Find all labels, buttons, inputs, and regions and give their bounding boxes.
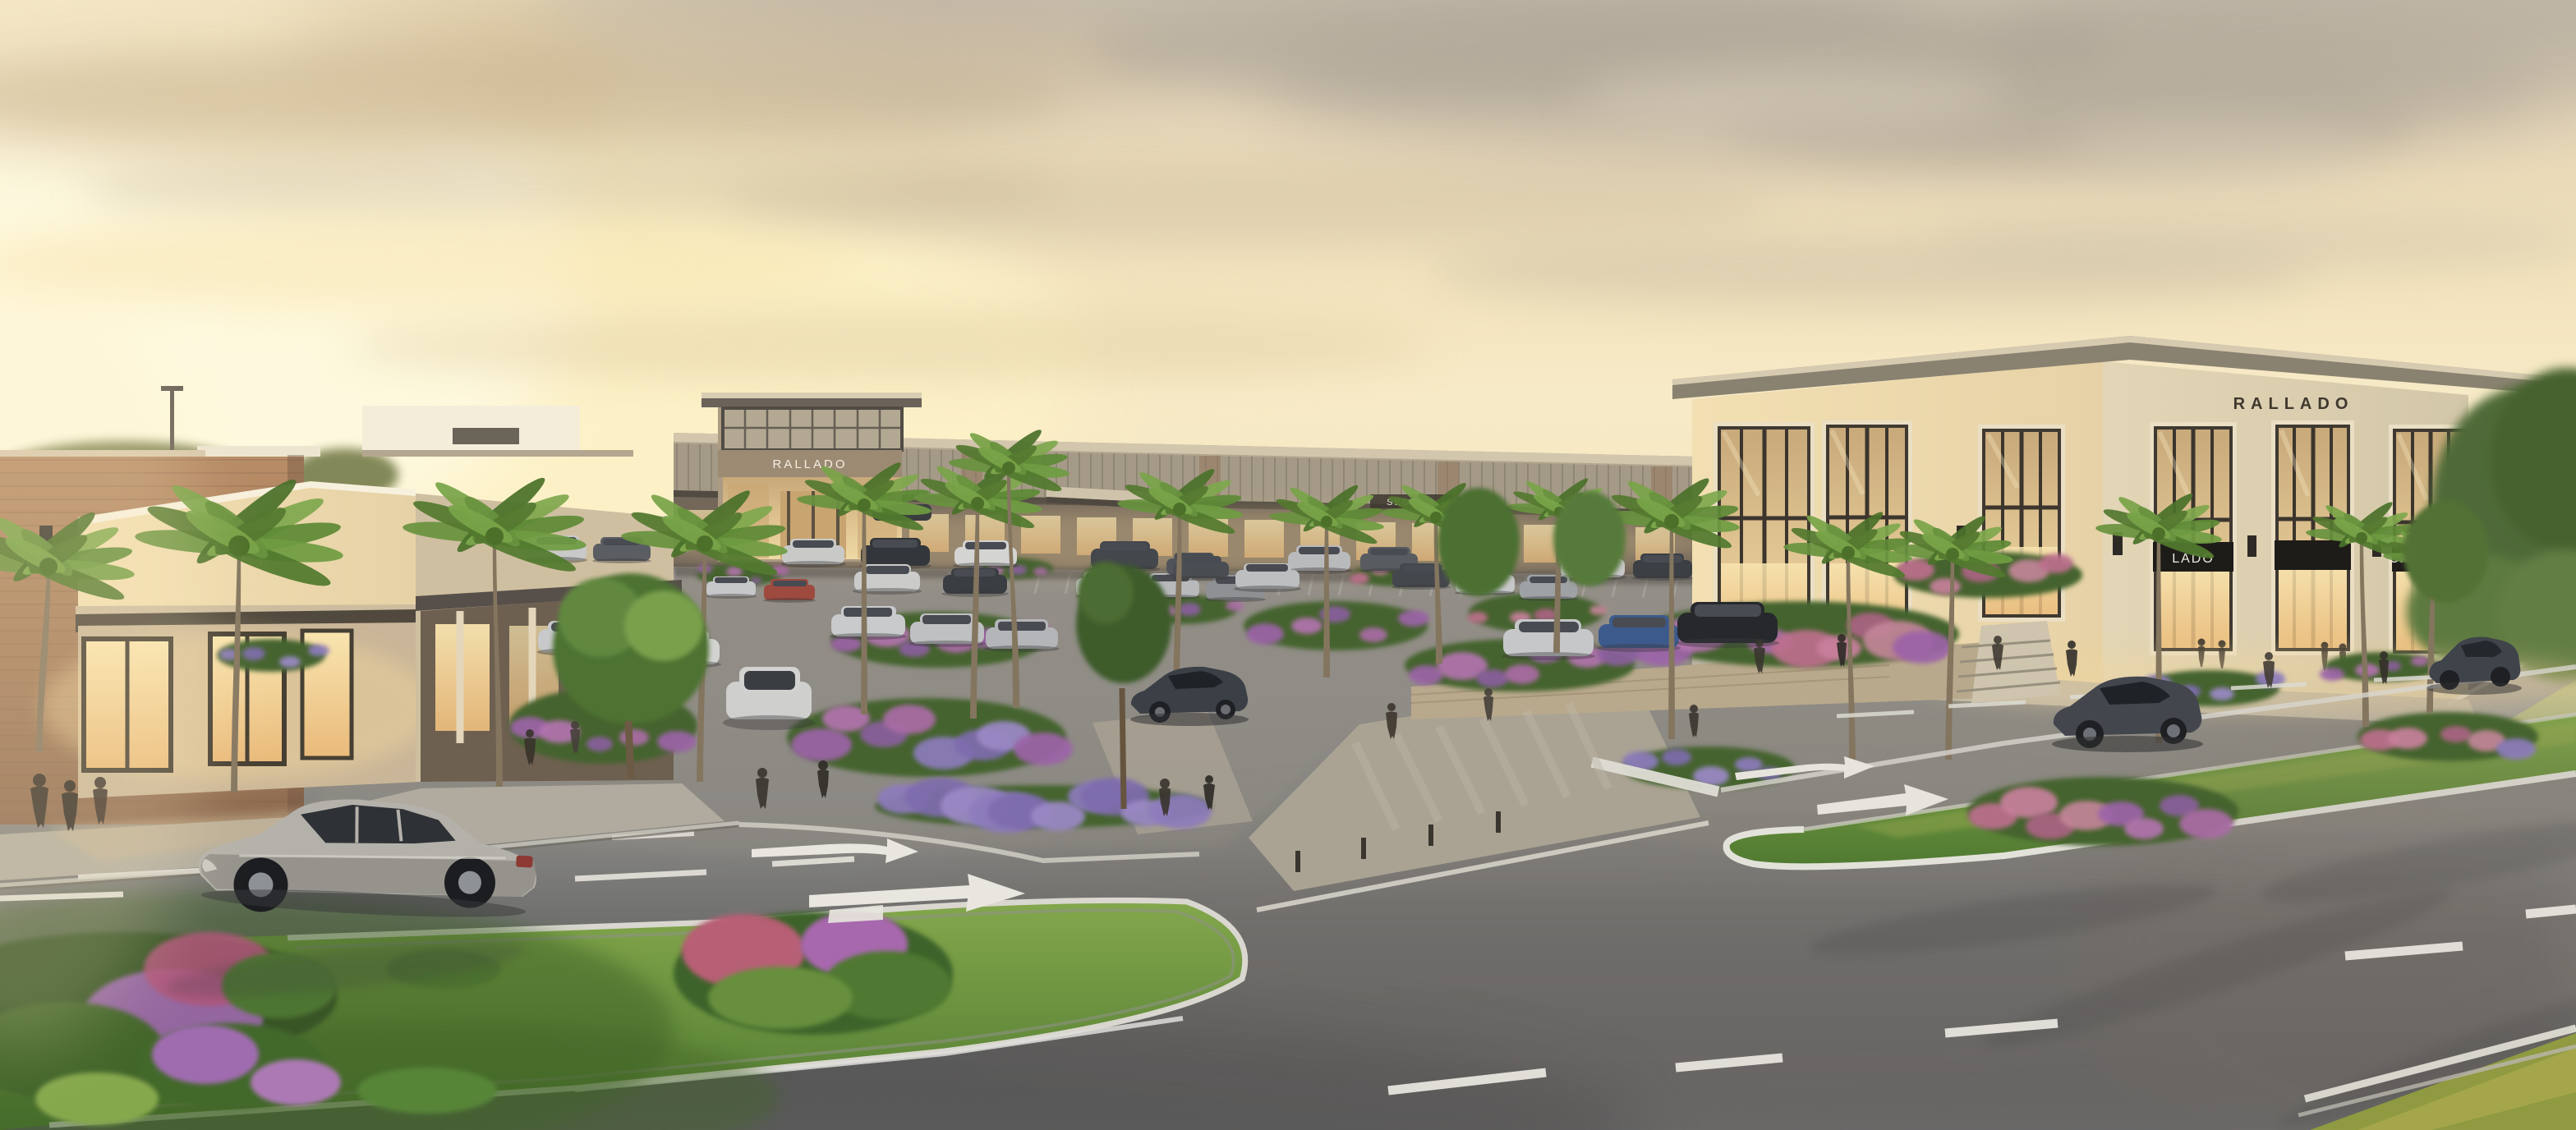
svg-text:RALLADO: RALLADO	[2233, 395, 2354, 413]
svg-text:RALLADO: RALLADO	[772, 457, 847, 471]
